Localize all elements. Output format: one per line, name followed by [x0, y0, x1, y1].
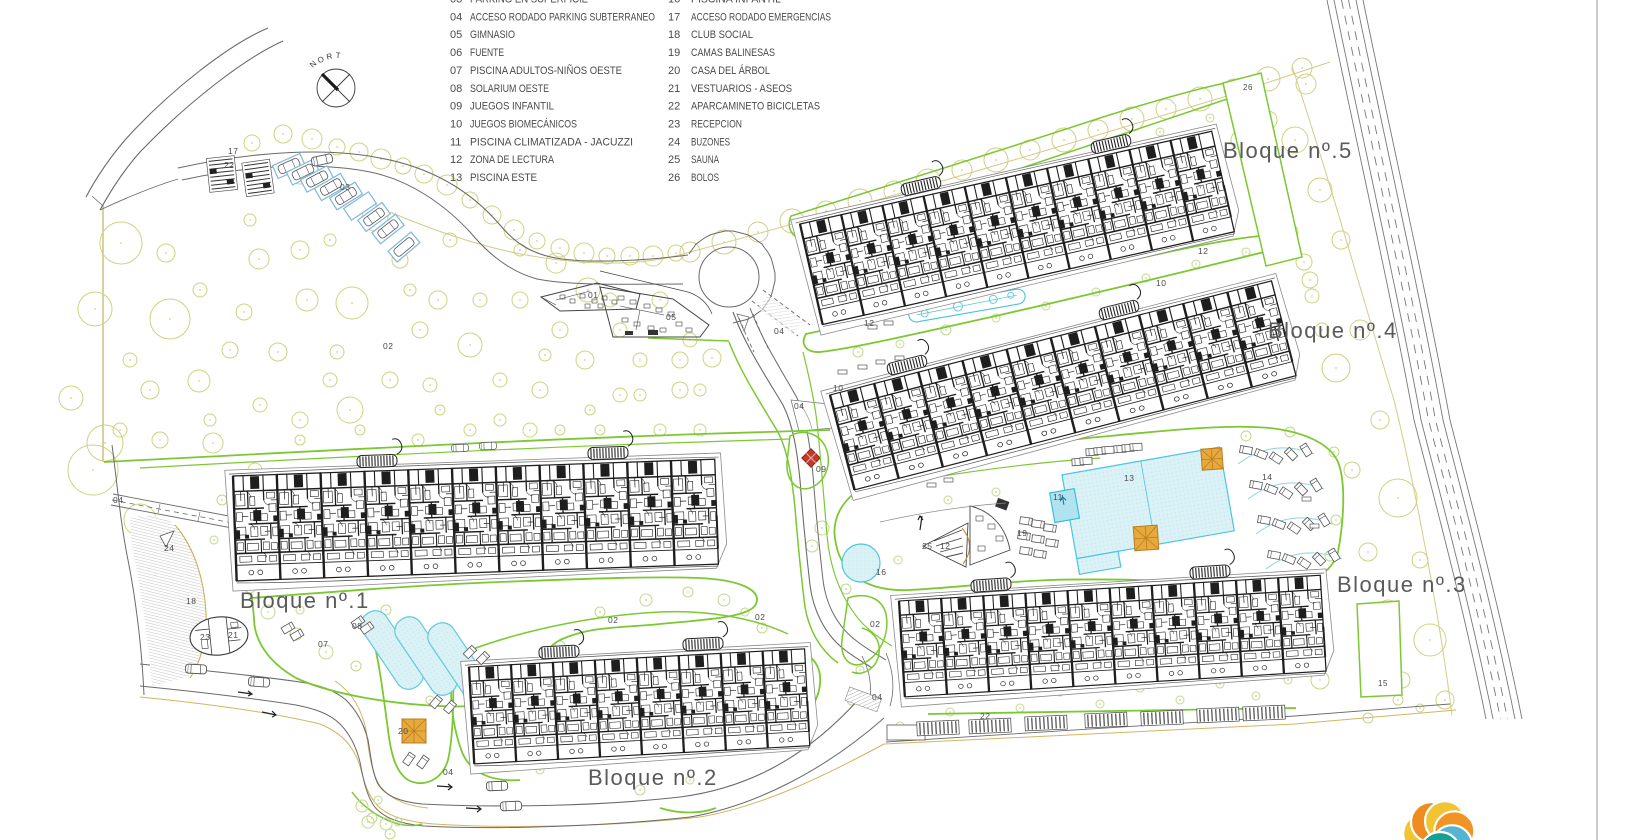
svg-text:24: 24 [668, 136, 680, 148]
svg-text:10: 10 [1156, 278, 1166, 288]
svg-text:07: 07 [318, 639, 328, 649]
svg-text:04: 04 [872, 692, 882, 702]
svg-text:02: 02 [870, 619, 880, 629]
svg-text:23: 23 [200, 632, 210, 642]
svg-text:25: 25 [668, 154, 680, 166]
svg-text:17: 17 [228, 146, 238, 156]
svg-text:04: 04 [450, 11, 462, 23]
svg-text:19: 19 [668, 47, 680, 59]
svg-text:19: 19 [1017, 528, 1027, 538]
svg-text:02: 02 [383, 341, 393, 351]
svg-text:SAUNA: SAUNA [691, 154, 719, 166]
svg-text:CASA DEL ÁRBOL: CASA DEL ÁRBOL [691, 64, 770, 77]
svg-text:BOLOS: BOLOS [691, 172, 719, 184]
svg-text:APARCAMINETO BICICLETAS: APARCAMINETO BICICLETAS [691, 101, 820, 113]
svg-text:07: 07 [450, 65, 462, 77]
svg-text:21: 21 [668, 83, 680, 95]
svg-text:21: 21 [228, 630, 238, 640]
svg-text:04: 04 [774, 326, 784, 336]
svg-text:SOLARIUM OESTE: SOLARIUM OESTE [470, 83, 549, 95]
svg-text:GIMNASIO: GIMNASIO [470, 29, 515, 41]
svg-text:05: 05 [450, 29, 462, 41]
svg-text:04: 04 [113, 495, 123, 505]
svg-text:Bloque nº.2: Bloque nº.2 [588, 765, 718, 790]
svg-text:03: 03 [340, 182, 350, 192]
svg-text:18: 18 [668, 29, 680, 41]
svg-text:Bloque nº.4: Bloque nº.4 [1268, 318, 1398, 343]
svg-text:06: 06 [450, 47, 462, 59]
svg-text:23: 23 [668, 119, 680, 131]
svg-text:20: 20 [668, 65, 680, 77]
svg-text:11: 11 [450, 136, 461, 148]
svg-text:PISCINA ESTE: PISCINA ESTE [470, 172, 537, 184]
svg-text:16: 16 [668, 0, 680, 6]
svg-text:PARKING EN SUPERFICIE: PARKING EN SUPERFICIE [470, 0, 588, 6]
svg-text:13: 13 [1124, 473, 1134, 483]
svg-text:26: 26 [1243, 83, 1253, 92]
svg-text:T: T [335, 51, 341, 60]
svg-text:PISCINA ADULTOS-NIÑOS OESTE: PISCINA ADULTOS-NIÑOS OESTE [470, 64, 622, 77]
svg-text:20: 20 [398, 726, 408, 736]
svg-text:26: 26 [668, 172, 680, 184]
svg-text:12: 12 [1198, 246, 1208, 256]
svg-text:CAMAS BALINESAS: CAMAS BALINESAS [691, 47, 775, 59]
svg-text:12: 12 [450, 154, 462, 166]
svg-text:PISCINA CLIMATIZADA - JACUZZI: PISCINA CLIMATIZADA - JACUZZI [470, 136, 633, 148]
svg-text:01: 01 [588, 290, 598, 300]
svg-text:10: 10 [833, 383, 843, 393]
svg-text:CLUB SOCIAL: CLUB SOCIAL [691, 29, 753, 41]
svg-text:09: 09 [450, 101, 462, 113]
svg-text:JUEGOS BIOMECÁNICOS: JUEGOS BIOMECÁNICOS [470, 118, 577, 131]
svg-text:18: 18 [186, 596, 196, 606]
svg-text:12: 12 [864, 318, 874, 328]
svg-text:ACCESO RODADO EMERGENCIAS: ACCESO RODADO EMERGENCIAS [691, 11, 831, 23]
svg-text:25: 25 [922, 541, 932, 551]
svg-text:ZONA DE LECTURA: ZONA DE LECTURA [470, 154, 555, 166]
svg-text:05: 05 [666, 312, 676, 322]
svg-text:PISCINA INFANTIL: PISCINA INFANTIL [691, 0, 781, 6]
svg-text:22: 22 [980, 711, 990, 721]
svg-text:08: 08 [450, 83, 462, 95]
svg-text:BUZONES: BUZONES [691, 136, 730, 148]
svg-text:02: 02 [755, 612, 765, 622]
svg-text:22: 22 [224, 160, 234, 170]
svg-text:24: 24 [164, 543, 174, 553]
svg-text:03: 03 [450, 0, 462, 6]
svg-text:16: 16 [876, 567, 886, 577]
svg-text:02: 02 [608, 615, 618, 625]
svg-text:14: 14 [1262, 472, 1272, 482]
svg-text:Bloque nº.1: Bloque nº.1 [240, 588, 370, 613]
svg-text:17: 17 [668, 11, 680, 23]
svg-text:ACCESO RODADO PARKING SUBTERRA: ACCESO RODADO PARKING SUBTERRANEO [470, 11, 655, 23]
svg-text:04: 04 [443, 767, 453, 777]
svg-text:JUEGOS INFANTIL: JUEGOS INFANTIL [470, 101, 554, 113]
svg-text:22: 22 [668, 101, 680, 113]
svg-text:09: 09 [816, 464, 826, 474]
svg-text:FUENTE: FUENTE [470, 47, 504, 59]
svg-text:Bloque nº.5: Bloque nº.5 [1223, 138, 1353, 163]
svg-text:04: 04 [794, 401, 804, 411]
svg-text:RECEPCION: RECEPCION [691, 119, 742, 131]
svg-text:12: 12 [940, 541, 950, 551]
svg-text:VESTUARIOS - ASEOS: VESTUARIOS - ASEOS [691, 83, 792, 95]
svg-text:10: 10 [450, 119, 462, 131]
svg-text:08: 08 [352, 621, 362, 631]
svg-text:Bloque nº.3: Bloque nº.3 [1337, 572, 1467, 597]
svg-text:13: 13 [450, 172, 462, 184]
svg-text:15: 15 [1378, 679, 1388, 688]
svg-text:11: 11 [1053, 492, 1063, 502]
